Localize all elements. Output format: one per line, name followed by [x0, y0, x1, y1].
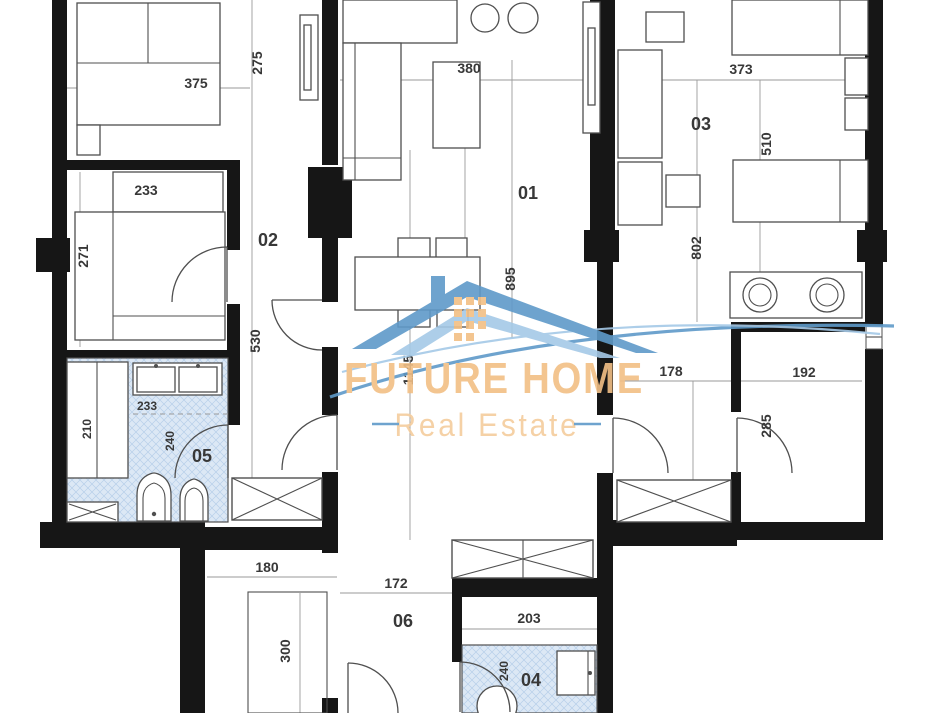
door-arc: [348, 663, 398, 713]
dimension-label: 178: [659, 363, 683, 379]
shaft-icon: [67, 502, 118, 522]
closet-icon: [452, 540, 593, 578]
desk-icon: [618, 162, 662, 225]
closet-icon: [232, 478, 322, 520]
door-arc: [282, 415, 337, 470]
stool-icon: [471, 4, 499, 32]
floor-plan: 0102030405063752753803735108958022332715…: [0, 0, 950, 713]
shower-cabinet-icon: [67, 362, 128, 478]
bed-icon: [75, 212, 225, 340]
dimension-label: 240: [163, 431, 177, 451]
stool-icon: [508, 3, 538, 33]
dimension-label: 895: [502, 267, 518, 291]
chair-icon: [666, 175, 700, 207]
dimension-label: 180: [255, 559, 279, 575]
dimension-label: 380: [457, 60, 481, 76]
dimension-label: 375: [184, 75, 208, 91]
door-arc: [613, 418, 668, 473]
dimension-label: 510: [758, 132, 774, 156]
door-arc: [272, 300, 322, 350]
dimension-label: 210: [80, 419, 94, 439]
floorplan-canvas: 0102030405063752753803735108958022332715…: [0, 0, 950, 713]
room-label: 05: [192, 446, 212, 466]
dimension-label: 240: [497, 661, 511, 681]
nightstand-icon: [845, 58, 868, 95]
dimension-label: 271: [75, 244, 91, 268]
room-label: 04: [521, 670, 541, 690]
dimension-label: 530: [247, 329, 263, 353]
window-icon: [866, 326, 882, 349]
dimension-label: 172: [384, 575, 408, 591]
room-label: 03: [691, 114, 711, 134]
nightstand-icon: [77, 125, 100, 155]
closet-icon: [617, 480, 731, 522]
double-sink-vanity-icon: [133, 363, 222, 395]
nightstand-icon: [845, 98, 868, 130]
double-bed-icon: [77, 3, 220, 125]
desk-icon: [618, 50, 662, 158]
laundry-counter-icon: [730, 272, 862, 318]
dimension-label: 192: [792, 364, 816, 380]
dimension-label: 275: [249, 51, 265, 75]
dresser-icon: [113, 172, 223, 212]
room-label: 02: [258, 230, 278, 250]
wardrobe-icon: [300, 15, 318, 100]
bidet-icon: [180, 479, 208, 521]
watermark-title: FUTURE HOME: [344, 354, 644, 403]
bed-icon: [733, 160, 868, 222]
dimension-label: 203: [517, 610, 541, 626]
dimension-label: 300: [277, 639, 293, 663]
room-label: 06: [393, 611, 413, 631]
dimension-label: 373: [729, 61, 753, 77]
dimension-label: 285: [758, 414, 774, 438]
bed-icon: [732, 0, 868, 55]
washing-machine-icon: [557, 651, 595, 695]
toilet-icon: [137, 473, 171, 521]
room-label: 01: [518, 183, 538, 203]
shelf-icon: [583, 2, 600, 133]
chair-icon: [646, 12, 684, 42]
dimension-label: 233: [137, 399, 157, 413]
dimension-label: 802: [688, 236, 704, 260]
watermark-subtitle: Real Estate: [395, 407, 580, 443]
dimension-label: 233: [134, 182, 158, 198]
